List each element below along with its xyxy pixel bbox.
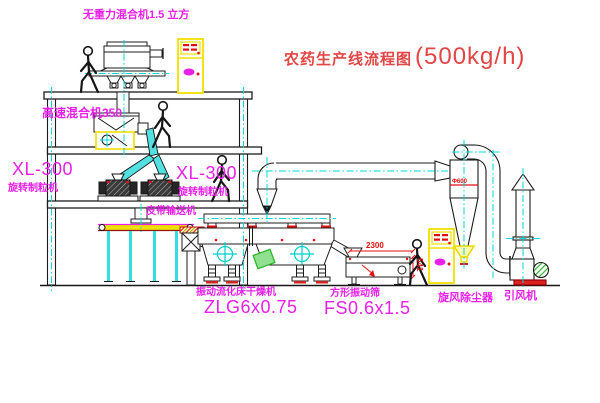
induced-draft-fan (510, 259, 549, 285)
person-figure (153, 102, 170, 147)
label-belt-conveyor: 皮带输送机 (146, 207, 196, 217)
exhaust-pipe (474, 145, 510, 276)
label-granulator-left-model: XL-300 (12, 160, 73, 178)
label-sieve-model: FS0.6x1.5 (324, 299, 411, 317)
dimension-sieve-height: 541 (415, 258, 423, 271)
label-granulator-right-model: XL-300 (176, 164, 237, 182)
label-granulator-right-name: 旋转制粒机 (178, 188, 228, 198)
diagram-title: 农药生产线流程图 (500kg/h) (284, 45, 525, 69)
title-text: 农药生产线流程图 (284, 52, 412, 67)
label-high-speed-mixer: 高速混合机350 (42, 107, 122, 119)
label-granulator-left-name: 旋转制粒机 (8, 184, 58, 194)
title-capacity: (500kg/h) (415, 45, 525, 69)
label-dryer-model: ZLG6x0.75 (204, 298, 298, 316)
person-figure (81, 47, 98, 92)
granulator-right (140, 174, 180, 201)
control-cabinet-top (178, 39, 203, 93)
granulator-left (98, 174, 138, 201)
process-flow-diagram: 农药生产线流程图 (500kg/h) 无重力混合机1.5 立方 高速混合机350… (0, 0, 600, 403)
dimension-cyclone-diameter: Φ600 (452, 179, 467, 185)
label-cyclone: 旋风除尘器 (438, 293, 493, 304)
control-cabinet-bottom (429, 229, 454, 283)
label-gravity-mixer: 无重力混合机1.5 立方 (83, 10, 189, 21)
transfer-duct (257, 161, 450, 214)
dimension-sieve-width: 2300 (366, 242, 384, 250)
gravity-free-mixer (89, 42, 165, 113)
vibrating-sieve (344, 248, 415, 285)
fluid-bed-dryer (198, 214, 352, 284)
label-fan: 引风机 (504, 291, 537, 302)
